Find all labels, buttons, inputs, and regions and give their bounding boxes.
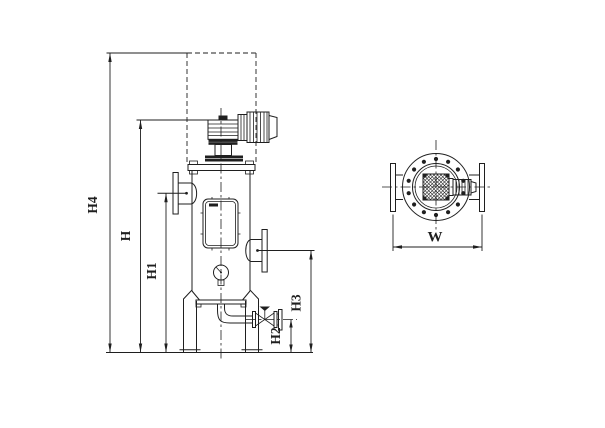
dimension-h1: H1 — [144, 193, 187, 352]
dim-label-h1: H1 — [144, 262, 159, 280]
dimension-h4: H4 — [85, 53, 187, 353]
electric-motor — [238, 112, 277, 143]
dim-label-h4: H4 — [85, 196, 100, 214]
manhole-cover — [201, 197, 241, 251]
drive-stand — [205, 139, 243, 161]
vessel-top-flange — [188, 161, 255, 174]
drain-pipe — [218, 304, 298, 323]
front-view: H4 H H1 H2 — [85, 53, 315, 361]
motor-end-cap — [269, 116, 277, 140]
top-view: W — [382, 140, 491, 251]
gearbox — [208, 116, 238, 140]
drain-valve — [253, 307, 283, 331]
withdrawal-envelope-dashed — [187, 53, 256, 165]
drawing-canvas: H4 H H1 H2 — [0, 0, 605, 428]
dim-label-h: H — [118, 230, 133, 241]
valve-handle — [260, 307, 271, 312]
dimension-h: H — [118, 120, 208, 353]
dim-label-w: W — [428, 230, 443, 246]
technical-drawing: H4 H H1 H2 — [0, 0, 605, 428]
dimension-h3: H3 — [258, 251, 315, 353]
topview-gearbox — [423, 174, 449, 200]
dim-label-h3: H3 — [289, 294, 304, 312]
gearbox-cap — [219, 116, 228, 121]
topview-left-nozzle — [391, 164, 404, 212]
